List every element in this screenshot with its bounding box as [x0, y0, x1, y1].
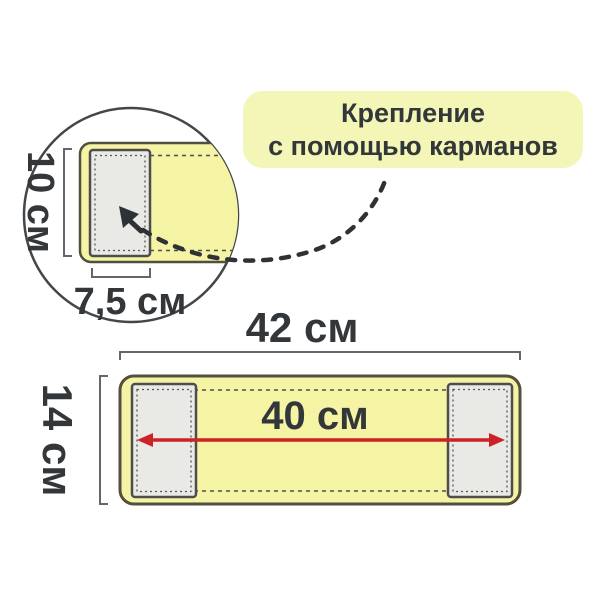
total-height-bracket: [100, 376, 108, 504]
pocket-height-label: 10 см: [21, 122, 59, 282]
callout-text-line1: Крепление: [341, 98, 485, 128]
callout-bubble: Крепление с помощью карманов: [243, 91, 583, 168]
total-width-label: 42 см: [182, 307, 422, 349]
detail-pocket: [90, 150, 150, 256]
magnifier-contents: [80, 143, 255, 262]
callout-text-line2: с помощью карманов: [268, 131, 558, 161]
total-width-bracket: [120, 352, 520, 360]
infographic-canvas: Крепление с помощью карманов 10 см 7,5 с…: [0, 0, 600, 600]
inner-width-label: 40 см: [195, 396, 435, 436]
total-height-label: 14 см: [36, 360, 78, 520]
